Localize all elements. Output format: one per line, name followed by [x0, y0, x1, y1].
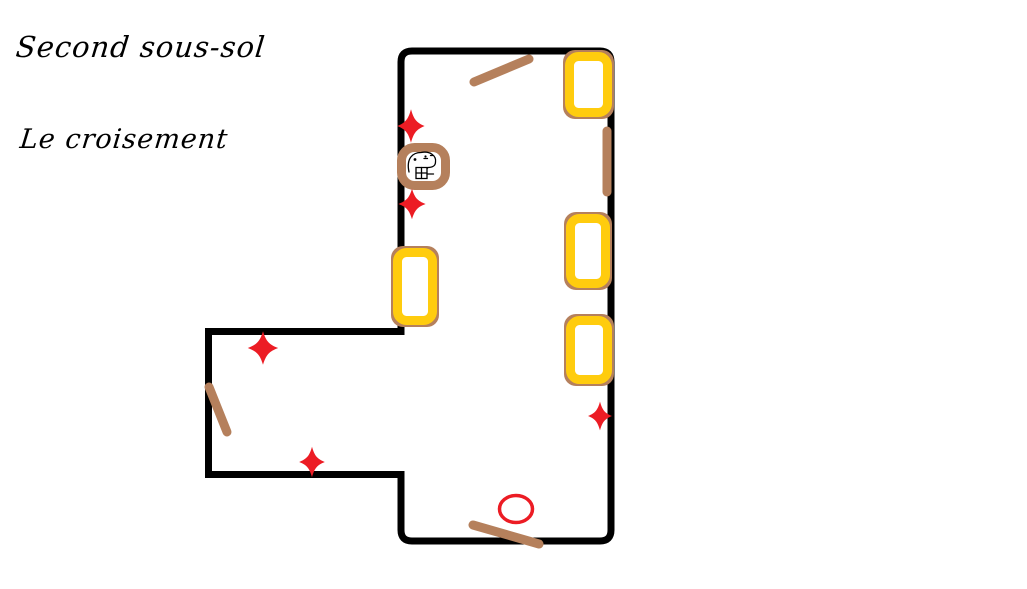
floor-map-drawing [0, 0, 1027, 589]
room-title: Le croisement [18, 124, 229, 155]
creature-eye [424, 155, 426, 157]
floor-title: Second sous-sol [14, 30, 267, 64]
creature-icon [402, 148, 446, 186]
yellow-marker-right-mid [571, 219, 606, 284]
yellow-marker-left [398, 253, 433, 321]
creature-eye [414, 158, 417, 161]
creature-layer [402, 148, 446, 186]
paint-canvas: Second sous-sol Le croisement [0, 0, 1027, 589]
yellow-marker-top [570, 57, 608, 113]
yellow-marker-right-low [571, 321, 608, 380]
